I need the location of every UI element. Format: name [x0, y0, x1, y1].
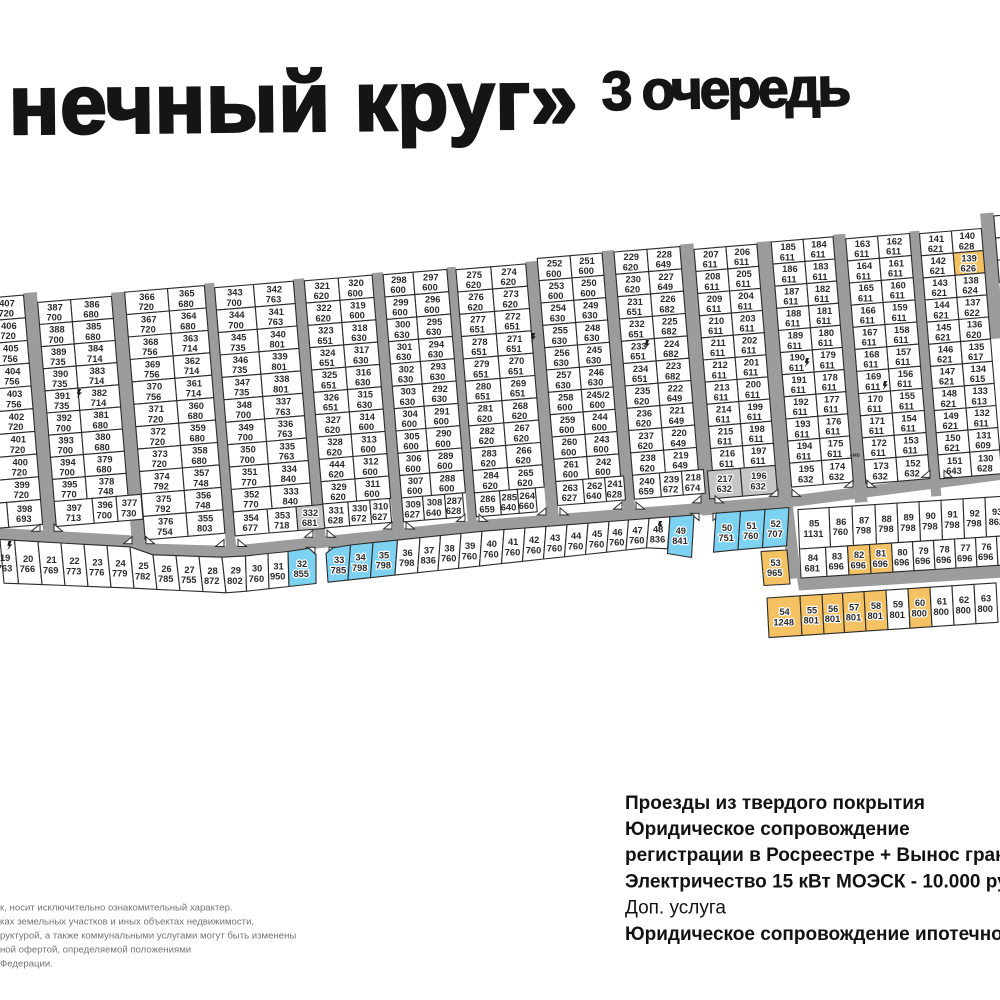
svg-text:620: 620: [514, 433, 530, 443]
svg-text:188: 188: [786, 309, 802, 319]
svg-text:343: 343: [227, 288, 243, 298]
svg-text:163: 163: [855, 239, 871, 249]
svg-text:630: 630: [428, 350, 444, 360]
svg-text:272: 272: [505, 312, 521, 322]
svg-text:397: 397: [66, 503, 82, 513]
svg-text:600: 600: [349, 311, 365, 321]
svg-text:627: 627: [562, 493, 578, 503]
svg-text:396: 396: [97, 500, 113, 510]
svg-text:696: 696: [915, 556, 931, 566]
svg-text:404: 404: [5, 366, 21, 376]
svg-text:374: 374: [154, 471, 170, 481]
svg-text:61: 61: [937, 597, 947, 607]
svg-text:770: 770: [241, 477, 257, 487]
svg-text:299: 299: [393, 297, 409, 307]
svg-text:395: 395: [62, 480, 78, 490]
svg-text:322: 322: [316, 303, 332, 313]
svg-text:680: 680: [189, 433, 205, 443]
svg-text:243: 243: [594, 435, 610, 445]
svg-text:620: 620: [482, 481, 498, 491]
svg-text:628: 628: [328, 516, 344, 526]
svg-text:157: 157: [896, 347, 912, 357]
svg-text:130: 130: [978, 453, 994, 463]
svg-text:611: 611: [816, 316, 831, 326]
svg-text:735: 735: [54, 401, 70, 411]
svg-text:611: 611: [827, 449, 842, 459]
svg-text:792: 792: [153, 482, 169, 492]
svg-text:600: 600: [422, 283, 438, 293]
svg-text:401: 401: [11, 435, 27, 445]
svg-text:208: 208: [705, 272, 721, 282]
svg-text:339: 339: [272, 352, 288, 362]
svg-text:748: 748: [193, 478, 209, 488]
svg-text:391: 391: [55, 391, 71, 401]
svg-text:91: 91: [948, 510, 958, 520]
svg-text:611: 611: [741, 346, 756, 356]
svg-text:279: 279: [474, 359, 490, 369]
svg-text:284: 284: [483, 471, 499, 481]
svg-text:630: 630: [396, 352, 412, 362]
svg-text:201: 201: [744, 358, 760, 368]
svg-text:366: 366: [139, 292, 155, 302]
svg-text:159: 159: [892, 303, 908, 313]
svg-text:39: 39: [465, 541, 475, 551]
svg-text:600: 600: [593, 445, 609, 455]
svg-text:154: 154: [901, 413, 917, 423]
svg-text:776: 776: [89, 568, 105, 578]
svg-text:328: 328: [327, 437, 343, 447]
svg-text:255: 255: [552, 326, 568, 336]
svg-text:700: 700: [239, 455, 255, 465]
svg-text:236: 236: [637, 409, 653, 419]
svg-text:632: 632: [829, 472, 845, 482]
svg-text:209: 209: [707, 294, 723, 304]
svg-text:191: 191: [791, 375, 807, 385]
svg-text:600: 600: [347, 288, 363, 298]
svg-text:720: 720: [10, 445, 26, 455]
svg-text:651: 651: [469, 325, 485, 335]
svg-text:700: 700: [236, 410, 252, 420]
svg-text:659: 659: [479, 504, 495, 514]
svg-text:311: 311: [365, 479, 380, 489]
svg-text:246: 246: [589, 368, 605, 378]
svg-text:334: 334: [281, 464, 297, 474]
svg-text:720: 720: [14, 490, 30, 500]
svg-text:760: 760: [547, 543, 563, 553]
svg-text:207: 207: [703, 250, 719, 260]
svg-text:134: 134: [971, 364, 987, 374]
svg-text:611: 611: [747, 412, 762, 422]
svg-text:221: 221: [669, 406, 685, 416]
svg-text:77: 77: [960, 543, 970, 553]
svg-text:760: 760: [441, 554, 457, 564]
svg-text:600: 600: [435, 439, 451, 449]
svg-text:620: 620: [481, 459, 497, 469]
svg-text:256: 256: [554, 348, 570, 358]
svg-text:222: 222: [668, 383, 684, 393]
svg-text:135: 135: [969, 342, 985, 352]
svg-text:620: 620: [502, 299, 518, 309]
svg-text:611: 611: [719, 459, 734, 469]
svg-text:760: 760: [568, 541, 584, 551]
svg-text:760: 760: [505, 547, 521, 557]
svg-text:186: 186: [782, 264, 798, 274]
svg-text:389: 389: [51, 347, 67, 357]
svg-text:82: 82: [854, 550, 864, 560]
svg-text:801: 801: [846, 613, 862, 623]
svg-text:1131: 1131: [803, 529, 823, 539]
svg-text:600: 600: [439, 484, 455, 494]
svg-text:862: 862: [989, 517, 1000, 527]
svg-text:707: 707: [767, 529, 783, 539]
svg-text:224: 224: [664, 339, 680, 349]
svg-text:267: 267: [514, 423, 530, 433]
svg-text:620: 620: [479, 436, 495, 446]
svg-text:399: 399: [14, 480, 30, 490]
svg-text:400: 400: [12, 457, 28, 467]
svg-text:287: 287: [447, 496, 463, 506]
svg-text:621: 621: [933, 310, 949, 320]
svg-text:355: 355: [198, 513, 214, 523]
svg-text:24: 24: [115, 558, 126, 568]
svg-text:376: 376: [158, 517, 174, 527]
svg-text:718: 718: [274, 521, 290, 531]
svg-text:63: 63: [981, 594, 991, 604]
svg-text:223: 223: [666, 361, 682, 371]
svg-text:700: 700: [226, 298, 242, 308]
svg-text:773: 773: [66, 566, 82, 576]
svg-text:628: 628: [446, 506, 462, 516]
svg-text:145: 145: [936, 322, 952, 332]
svg-text:714: 714: [184, 366, 200, 376]
svg-text:234: 234: [633, 364, 649, 374]
svg-text:611: 611: [897, 379, 912, 389]
svg-text:153: 153: [903, 435, 919, 445]
svg-text:680: 680: [93, 420, 109, 430]
svg-text:630: 630: [430, 372, 446, 382]
svg-text:367: 367: [141, 314, 157, 324]
svg-text:672: 672: [663, 485, 679, 495]
svg-text:836: 836: [650, 535, 666, 545]
svg-text:611: 611: [743, 368, 758, 378]
svg-text:169: 169: [866, 372, 882, 382]
svg-text:335: 335: [280, 441, 296, 451]
svg-text:385: 385: [86, 322, 102, 332]
svg-text:254: 254: [551, 303, 567, 313]
svg-text:359: 359: [190, 423, 206, 433]
svg-text:651: 651: [319, 358, 335, 368]
svg-text:295: 295: [427, 317, 443, 327]
svg-text:38: 38: [444, 543, 454, 553]
svg-text:627: 627: [405, 510, 421, 520]
svg-text:680: 680: [83, 310, 99, 320]
svg-text:609: 609: [975, 441, 991, 451]
svg-text:836: 836: [420, 556, 436, 566]
svg-text:611: 611: [793, 407, 808, 417]
svg-text:770: 770: [243, 500, 259, 510]
svg-text:950: 950: [270, 572, 286, 582]
svg-text:611: 611: [704, 282, 719, 292]
svg-text:792: 792: [155, 504, 171, 514]
svg-text:611: 611: [740, 324, 755, 334]
svg-text:630: 630: [426, 327, 442, 337]
svg-text:748: 748: [98, 487, 114, 497]
svg-text:760: 760: [589, 539, 605, 549]
svg-text:Федерации.: Федерации.: [0, 959, 53, 970]
svg-text:720: 720: [0, 331, 16, 341]
svg-text:232: 232: [629, 319, 645, 329]
svg-text:630: 630: [351, 333, 367, 343]
svg-text:700: 700: [97, 510, 113, 520]
svg-text:630: 630: [355, 378, 371, 388]
svg-text:756: 756: [144, 370, 160, 380]
svg-text:620: 620: [638, 441, 654, 451]
svg-text:632: 632: [750, 481, 766, 491]
svg-text:нечный круг»: нечный круг»: [8, 52, 578, 152]
svg-text:756: 756: [146, 392, 162, 402]
svg-text:278: 278: [472, 337, 488, 347]
svg-text:29: 29: [231, 566, 241, 576]
svg-text:62: 62: [959, 595, 969, 605]
svg-text:35: 35: [379, 550, 389, 560]
svg-text:345: 345: [231, 333, 247, 343]
svg-text:235: 235: [635, 386, 651, 396]
svg-text:611: 611: [780, 252, 795, 262]
svg-text:Электричество 15 кВт МОЭСК - 1: Электричество 15 кВт МОЭСК - 10.000 руб.: [625, 871, 1000, 892]
svg-text:611: 611: [894, 335, 909, 345]
svg-text:370: 370: [147, 382, 163, 392]
svg-text:763: 763: [0, 563, 12, 573]
svg-text:302: 302: [399, 364, 415, 374]
svg-text:178: 178: [822, 372, 838, 382]
svg-text:258: 258: [558, 393, 574, 403]
svg-text:714: 714: [91, 398, 107, 408]
svg-text:194: 194: [797, 441, 813, 451]
svg-text:292: 292: [432, 384, 448, 394]
svg-text:674: 674: [685, 483, 701, 493]
svg-text:398: 398: [17, 504, 33, 514]
svg-text:402: 402: [9, 412, 25, 422]
svg-text:651: 651: [471, 347, 487, 357]
svg-text:611: 611: [796, 451, 811, 461]
svg-text:Проезды из твердого покрытия: Проезды из твердого покрытия: [625, 793, 925, 814]
svg-text:611: 611: [854, 249, 869, 259]
svg-text:748: 748: [195, 501, 211, 511]
svg-text:253: 253: [549, 281, 565, 291]
svg-text:630: 630: [357, 400, 373, 410]
svg-text:621: 621: [939, 377, 955, 387]
svg-text:196: 196: [751, 471, 767, 481]
svg-text:342: 342: [267, 284, 283, 294]
svg-text:375: 375: [156, 494, 172, 504]
svg-text:31: 31: [273, 562, 283, 572]
svg-text:760: 760: [483, 549, 499, 559]
svg-text:611: 611: [895, 357, 910, 367]
svg-text:615: 615: [970, 374, 986, 384]
svg-text:680: 680: [191, 456, 207, 466]
svg-text:611: 611: [745, 390, 760, 400]
svg-text:760: 760: [833, 527, 849, 537]
svg-text:680: 680: [188, 411, 204, 421]
svg-text:182: 182: [815, 284, 831, 294]
svg-text:611: 611: [901, 424, 916, 434]
svg-text:Юридическое сопровождение ипот: Юридическое сопровождение ипотечной сд: [625, 924, 1000, 945]
svg-text:611: 611: [714, 393, 729, 403]
svg-text:600: 600: [590, 400, 606, 410]
svg-text:620: 620: [639, 463, 655, 473]
svg-text:620: 620: [625, 285, 641, 295]
svg-text:152: 152: [905, 458, 921, 468]
svg-text:621: 621: [941, 399, 957, 409]
svg-text:600: 600: [359, 422, 375, 432]
svg-text:351: 351: [242, 467, 258, 477]
svg-text:161: 161: [889, 258, 905, 268]
svg-text:782: 782: [135, 571, 151, 581]
svg-text:365: 365: [179, 289, 195, 299]
svg-text:261: 261: [564, 460, 580, 470]
svg-text:ках земельных участков и иных: ках земельных участков и иных объектах н…: [0, 917, 254, 928]
svg-text:358: 358: [192, 446, 208, 456]
svg-text:363: 363: [183, 334, 199, 344]
svg-text:611: 611: [860, 316, 875, 326]
svg-text:681: 681: [302, 518, 318, 528]
svg-text:617: 617: [968, 352, 984, 362]
svg-text:151: 151: [947, 456, 963, 466]
svg-text:50: 50: [722, 523, 732, 533]
svg-text:382: 382: [92, 388, 108, 398]
svg-text:229: 229: [624, 252, 640, 262]
svg-text:344: 344: [229, 310, 245, 320]
svg-text:621: 621: [935, 333, 951, 343]
svg-text:368: 368: [143, 337, 159, 347]
svg-text:600: 600: [424, 305, 440, 315]
svg-text:696: 696: [828, 562, 844, 572]
svg-text:83: 83: [832, 552, 842, 562]
svg-text:700: 700: [56, 423, 72, 433]
svg-text:300: 300: [395, 320, 411, 330]
svg-text:611: 611: [888, 269, 903, 279]
svg-text:681: 681: [804, 563, 820, 573]
svg-text:672: 672: [351, 514, 367, 524]
svg-text:640: 640: [501, 503, 517, 513]
svg-text:735: 735: [234, 388, 250, 398]
svg-text:620: 620: [501, 277, 517, 287]
svg-text:611: 611: [820, 360, 835, 370]
svg-text:760: 760: [743, 531, 759, 541]
svg-text:34: 34: [355, 553, 366, 563]
svg-text:600: 600: [559, 425, 575, 435]
svg-text:309: 309: [405, 499, 421, 509]
svg-text:700: 700: [46, 313, 62, 323]
svg-text:798: 798: [900, 523, 916, 533]
svg-text:308: 308: [427, 498, 443, 508]
svg-text:649: 649: [672, 461, 688, 471]
svg-text:696: 696: [936, 555, 952, 565]
svg-text:630: 630: [586, 355, 602, 365]
svg-text:630: 630: [582, 311, 598, 321]
svg-text:361: 361: [187, 378, 203, 388]
svg-text:611: 611: [749, 434, 764, 444]
svg-text:168: 168: [864, 350, 880, 360]
svg-text:172: 172: [871, 438, 887, 448]
svg-text:199: 199: [747, 402, 763, 412]
svg-text:378: 378: [99, 476, 115, 486]
svg-text:238: 238: [640, 453, 656, 463]
svg-text:93: 93: [992, 507, 1000, 517]
svg-text:337: 337: [276, 397, 292, 407]
svg-text:27: 27: [184, 565, 194, 575]
svg-text:329: 329: [331, 482, 347, 492]
svg-text:56: 56: [828, 604, 838, 614]
svg-text:630: 630: [394, 330, 410, 340]
svg-text:620: 620: [330, 492, 346, 502]
svg-text:377: 377: [122, 498, 138, 508]
svg-text:291: 291: [434, 406, 450, 416]
svg-text:23: 23: [92, 557, 102, 567]
svg-text:60: 60: [915, 598, 925, 608]
svg-text:313: 313: [361, 434, 377, 444]
svg-text:323: 323: [318, 326, 334, 336]
svg-text:611: 611: [865, 382, 880, 392]
svg-text:714: 714: [182, 344, 198, 354]
svg-text:720: 720: [150, 437, 166, 447]
svg-text:354: 354: [243, 513, 259, 523]
svg-text:217: 217: [717, 474, 733, 484]
svg-text:406: 406: [1, 321, 17, 331]
svg-text:735: 735: [50, 357, 66, 367]
svg-text:600: 600: [578, 266, 594, 276]
svg-text:760: 760: [629, 536, 645, 546]
svg-text:714: 714: [87, 354, 103, 364]
svg-text:237: 237: [638, 431, 654, 441]
svg-text:802: 802: [227, 576, 243, 586]
svg-text:680: 680: [94, 442, 110, 452]
svg-text:600: 600: [433, 417, 449, 427]
svg-text:266: 266: [516, 446, 532, 456]
svg-text:611: 611: [734, 257, 749, 267]
svg-text:630: 630: [550, 313, 566, 323]
svg-text:257: 257: [556, 370, 572, 380]
svg-text:333: 333: [283, 486, 299, 496]
svg-text:306: 306: [406, 454, 422, 464]
svg-text:872: 872: [204, 576, 220, 586]
svg-text:195: 195: [799, 464, 815, 474]
svg-text:150: 150: [945, 433, 961, 443]
svg-text:620: 620: [315, 313, 331, 323]
svg-text:620: 620: [515, 456, 531, 466]
svg-text:801: 801: [269, 340, 285, 350]
svg-text:41: 41: [508, 537, 518, 547]
svg-text:369: 369: [145, 359, 161, 369]
svg-text:1248: 1248: [773, 617, 794, 627]
svg-text:630: 630: [432, 394, 448, 404]
svg-text:205: 205: [736, 269, 752, 279]
svg-text:611: 611: [899, 401, 914, 411]
svg-text:177: 177: [824, 394, 840, 404]
svg-text:649: 649: [656, 260, 672, 270]
svg-text:611: 611: [795, 429, 810, 439]
svg-text:40: 40: [487, 539, 497, 549]
svg-text:620: 620: [314, 291, 330, 301]
svg-text:321: 321: [314, 281, 330, 291]
svg-text:735: 735: [232, 365, 248, 375]
svg-text:696: 696: [894, 558, 910, 568]
svg-text:262: 262: [587, 481, 603, 491]
svg-text:620: 620: [512, 411, 528, 421]
svg-text:696: 696: [957, 553, 973, 563]
svg-text:310: 310: [373, 502, 389, 512]
svg-text:700: 700: [59, 468, 75, 478]
